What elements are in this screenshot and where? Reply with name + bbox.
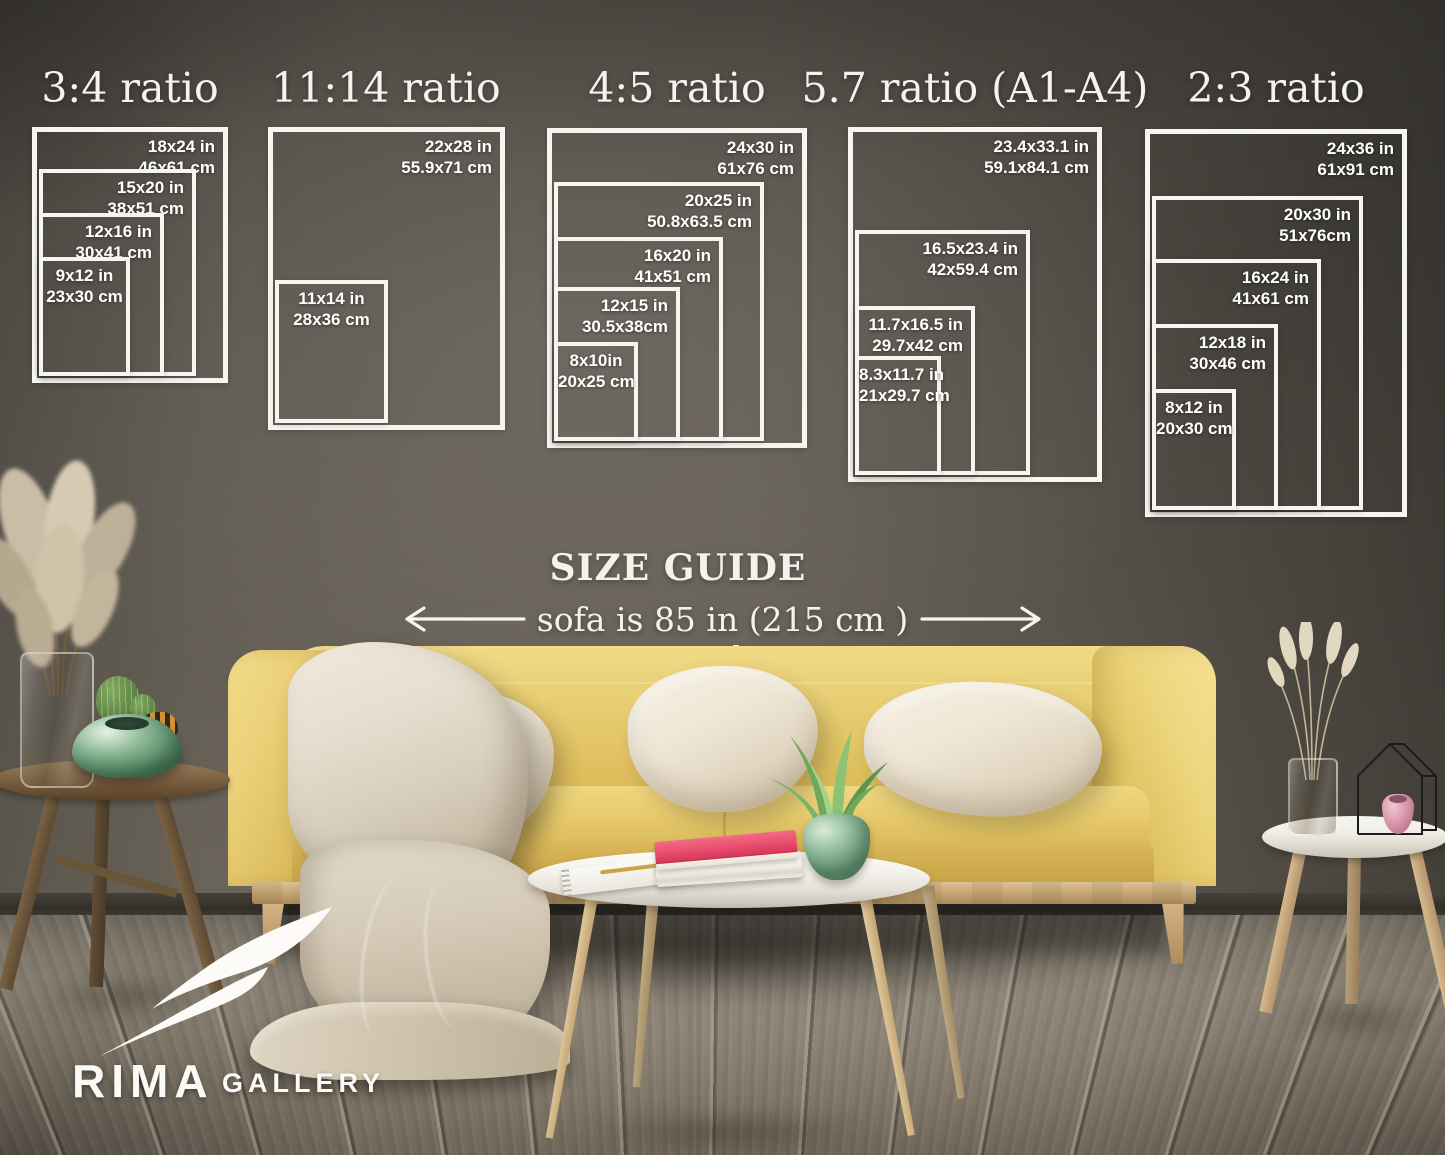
size-cm: 61x91 cm — [1317, 160, 1394, 181]
size-cm: 23x30 cm — [43, 287, 126, 308]
size-cm: 61x76 cm — [717, 159, 794, 180]
size-inches: 24x30 in — [717, 138, 794, 159]
size-inches: 22x28 in — [401, 137, 492, 158]
size-frame-label: 20x25 in 50.8x63.5 cm — [647, 191, 752, 232]
size-inches: 8.3x11.7 in — [859, 365, 937, 386]
size-frame-11x14: 11x14 in 28x36 cm — [275, 280, 388, 423]
size-inches: 8x12 in — [1156, 398, 1232, 419]
arrow-right-icon — [918, 602, 1044, 636]
size-inches: 11.7x16.5 in — [868, 315, 963, 336]
size-frame-label: 24x30 in 61x76 cm — [717, 138, 794, 179]
size-cm: 51x76cm — [1279, 226, 1351, 247]
size-frame-label: 16.5x23.4 in 42x59.4 cm — [923, 239, 1018, 280]
size-guide-heading: SIZE GUIDE — [528, 547, 828, 589]
size-inches: 12x15 in — [582, 296, 668, 317]
size-cm: 20x30 cm — [1156, 419, 1232, 440]
size-inches: 15x20 in — [107, 178, 184, 199]
size-frame-label: 9x12 in 23x30 cm — [43, 266, 126, 307]
size-inches: 12x16 in — [75, 222, 152, 243]
size-inches: 24x36 in — [1317, 139, 1394, 160]
size-frame-label: 22x28 in 55.9x71 cm — [401, 137, 492, 178]
size-frame-label: 12x18 in 30x46 cm — [1189, 333, 1266, 374]
size-cm: 50.8x63.5 cm — [647, 212, 752, 233]
ratio-title-4-5: 4:5 ratio — [527, 66, 827, 111]
size-inches: 20x30 in — [1279, 205, 1351, 226]
size-frame-8x12: 8x12 in 20x30 cm — [1152, 389, 1236, 510]
size-frame-label: 20x30 in 51x76cm — [1279, 205, 1351, 246]
size-frame-label: 11.7x16.5 in 29.7x42 cm — [868, 315, 963, 356]
size-inches: 23.4x33.1 in — [984, 137, 1089, 158]
size-inches: 9x12 in — [43, 266, 126, 287]
size-cm: 21x29.7 cm — [859, 386, 937, 407]
size-frame-8x10: 8x10in 20x25 cm — [554, 342, 638, 441]
size-cm: 41x61 cm — [1232, 289, 1309, 310]
size-frame-label: 16x24 in 41x61 cm — [1232, 268, 1309, 309]
size-inches: 11x14 in — [279, 289, 384, 310]
size-inches: 12x18 in — [1189, 333, 1266, 354]
size-cm: 28x36 cm — [279, 310, 384, 331]
coffee-table-shadow — [520, 1106, 940, 1155]
ratio-title-2-3: 2:3 ratio — [1126, 66, 1426, 111]
size-frame-label: 23.4x33.1 in 59.1x84.1 cm — [984, 137, 1089, 178]
size-frame-label: 11x14 in 28x36 cm — [279, 289, 384, 330]
size-frame-label: 12x15 in 30.5x38cm — [582, 296, 668, 337]
arrow-left-icon — [402, 602, 528, 636]
size-cm: 59.1x84.1 cm — [984, 158, 1089, 179]
size-cm: 30x46 cm — [1189, 354, 1266, 375]
ratio-title-11-14: 11:14 ratio — [236, 66, 536, 111]
brand-suffix: GALLERY — [222, 1068, 385, 1099]
stool-leg — [1345, 852, 1361, 1004]
size-guide-poster: 3:4 ratio 11:14 ratio 4:5 ratio 5.7 rati… — [0, 0, 1445, 1155]
size-inches: 16x20 in — [634, 246, 711, 267]
glass-vase-right — [1288, 758, 1338, 836]
brand-name: RIMA — [72, 1054, 214, 1108]
size-cm: 20x25 cm — [558, 372, 634, 393]
size-inches: 8x10in — [558, 351, 634, 372]
size-frame-8x11: 8.3x11.7 in 21x29.7 cm — [855, 356, 941, 475]
size-cm: 42x59.4 cm — [923, 260, 1018, 281]
size-frame-label: 8x10in 20x25 cm — [558, 351, 634, 392]
rima-logo-swoosh-icon — [70, 895, 390, 1070]
stool-shadow — [1256, 1000, 1445, 1038]
ratio-title-5-7: 5.7 ratio (A1-A4) — [795, 66, 1155, 111]
size-cm: 55.9x71 cm — [401, 158, 492, 179]
size-cm: 29.7x42 cm — [868, 336, 963, 357]
size-frame-label: 16x20 in 41x51 cm — [634, 246, 711, 287]
size-inches: 18x24 in — [138, 137, 215, 158]
size-frame-label: 24x36 in 61x91 cm — [1317, 139, 1394, 180]
size-cm: 41x51 cm — [634, 267, 711, 288]
size-inches: 16x24 in — [1232, 268, 1309, 289]
size-inches: 16.5x23.4 in — [923, 239, 1018, 260]
size-frame-label: 8x12 in 20x30 cm — [1156, 398, 1232, 439]
size-inches: 20x25 in — [647, 191, 752, 212]
size-frame-9x12: 9x12 in 23x30 cm — [39, 257, 130, 376]
size-cm: 30.5x38cm — [582, 317, 668, 338]
size-frame-label: 8.3x11.7 in 21x29.7 cm — [859, 365, 937, 406]
